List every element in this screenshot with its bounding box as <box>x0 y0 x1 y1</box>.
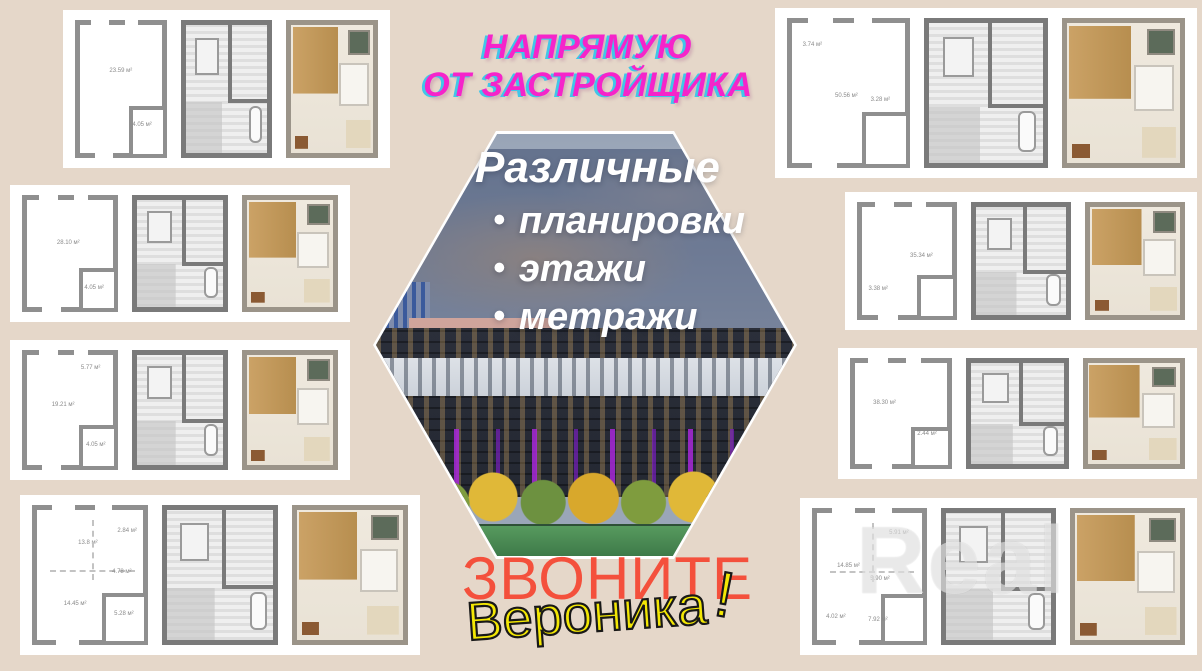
bathtub <box>1028 593 1045 630</box>
feature-item: •метражи <box>493 293 797 341</box>
feature-item: •этажи <box>493 245 797 293</box>
area-label: 7.92 м² <box>868 617 887 623</box>
area-label: 2.84 м² <box>117 528 136 534</box>
card-left-upper: 28.10 м²4.05 м² <box>10 185 350 322</box>
detailed-floorplan <box>941 508 1056 645</box>
card-top-right: 3.74 м²50.56 м²3.28 м² <box>775 8 1197 178</box>
window-gap <box>912 202 926 207</box>
area-label: 5.28 м² <box>114 611 133 617</box>
headline: НАПРЯМУЮ ОТ ЗАСТРОЙЩИКА <box>388 28 788 104</box>
area-label: 38.30 м² <box>873 400 896 406</box>
card-left-lower: 19.21 м²5.77 м²4.05 м² <box>10 340 350 480</box>
detailed-floorplan <box>971 202 1071 320</box>
window-gap <box>836 640 859 645</box>
window-gap <box>878 315 898 320</box>
bed-furniture <box>982 373 1008 403</box>
small-room <box>862 112 911 168</box>
window-gap <box>74 350 88 355</box>
bathtub <box>204 267 218 299</box>
window-gap <box>812 163 837 168</box>
feature-label: метражи <box>519 296 698 338</box>
window-gap <box>868 358 888 363</box>
outline-floorplan: 23.59 м²4.05 м² <box>75 20 167 158</box>
area-label: 14.45 м² <box>64 601 87 607</box>
area-label: 50.56 м² <box>835 93 858 99</box>
area-label: 13.8 м² <box>78 540 97 546</box>
bed-furniture <box>147 211 172 243</box>
area-label: 4.02 м² <box>826 614 845 620</box>
window-gap <box>875 202 895 207</box>
render-floorplan <box>1083 358 1185 469</box>
features-title: Различные <box>475 143 797 193</box>
small-room <box>917 275 957 320</box>
window-gap <box>854 18 872 23</box>
bullet-icon: • <box>493 245 505 292</box>
window-gap <box>52 505 75 510</box>
bed-furniture <box>147 366 172 399</box>
small-room <box>881 594 927 645</box>
bathtub <box>249 106 263 143</box>
headline-line1: НАПРЯМУЮ <box>388 28 788 66</box>
window-gap <box>875 508 892 513</box>
window-gap <box>832 508 855 513</box>
area-label: 4.05 м² <box>86 442 105 448</box>
detailed-floorplan <box>181 20 273 158</box>
area-label: 4.05 м² <box>84 285 103 291</box>
bed-furniture <box>195 38 219 75</box>
detailed-floorplan <box>162 505 278 645</box>
render-floorplan <box>1070 508 1185 645</box>
outline-floorplan: 13.8 м²2.84 м²4.78 м²14.45 м²5.28 м² <box>32 505 148 645</box>
autumn-trees <box>376 463 794 531</box>
detailed-floorplan <box>924 18 1047 168</box>
window-gap <box>39 195 58 200</box>
window-gap <box>95 505 112 510</box>
area-label: 28.10 м² <box>57 240 80 246</box>
window-gap <box>808 18 833 23</box>
window-gap <box>95 153 113 158</box>
bathtub <box>250 592 267 630</box>
outline-floorplan: 3.74 м²50.56 м²3.28 м² <box>787 18 910 168</box>
outline-floorplan: 35.34 м²3.38 м² <box>857 202 957 320</box>
card-right-lower: 38.30 м²2.44 м² <box>838 348 1197 479</box>
feature-item: •планировки <box>493 197 797 245</box>
area-label: 4.05 м² <box>132 122 151 128</box>
area-label: 3.74 м² <box>803 42 822 48</box>
window-gap <box>91 20 109 25</box>
area-label: 14.85 м² <box>837 563 860 569</box>
area-label: 4.78 м² <box>112 569 131 575</box>
window-gap <box>74 195 88 200</box>
bathtub <box>1046 274 1061 306</box>
render-floorplan <box>242 350 338 470</box>
features-list: Различные •планировки •этажи •метражи <box>373 137 797 341</box>
card-right-upper: 35.34 м²3.38 м² <box>845 192 1197 330</box>
render-floorplan <box>242 195 338 312</box>
small-room <box>102 593 148 645</box>
window-gap <box>42 465 61 470</box>
bed-furniture <box>987 218 1013 250</box>
outline-floorplan: 19.21 м²5.77 м²4.05 м² <box>22 350 118 470</box>
white-facade-band <box>376 358 794 396</box>
bed-furniture <box>943 37 974 77</box>
feature-label: этажи <box>519 248 646 290</box>
detailed-floorplan <box>966 358 1068 469</box>
bathtub <box>1043 426 1058 456</box>
headline-line2: ОТ ЗАСТРОЙЩИКА <box>388 66 788 104</box>
render-floorplan <box>286 20 378 158</box>
bullet-icon: • <box>493 293 505 340</box>
bed-furniture <box>959 526 988 563</box>
bullet-icon: • <box>493 197 505 244</box>
area-label: 5.91 м² <box>889 530 908 536</box>
window-gap <box>125 20 138 25</box>
agent-name-text: Вероника <box>465 576 710 653</box>
window-gap <box>872 464 892 469</box>
area-label: 23.59 м² <box>109 68 132 74</box>
area-label: 5.77 м² <box>81 365 100 371</box>
area-label: 3.28 м² <box>871 97 890 103</box>
bathtub <box>1018 111 1036 151</box>
bathtub <box>204 424 218 457</box>
real-estate-flyer: 23.59 м²4.05 м²28.10 м²4.05 м²19.21 м²5.… <box>0 0 1202 671</box>
card-bottom-left: 13.8 м²2.84 м²4.78 м²14.45 м²5.28 м² <box>20 495 420 655</box>
render-floorplan <box>1085 202 1185 320</box>
window-gap <box>42 307 61 312</box>
outline-floorplan: 38.30 м²2.44 м² <box>850 358 952 469</box>
window-gap <box>906 358 921 363</box>
small-room <box>129 106 166 158</box>
window-gap <box>56 640 79 645</box>
window-gap <box>39 350 58 355</box>
detailed-floorplan <box>132 350 228 470</box>
outline-floorplan: 28.10 м²4.05 м² <box>22 195 118 312</box>
detailed-floorplan <box>132 195 228 312</box>
card-top-left: 23.59 м²4.05 м² <box>63 10 390 168</box>
area-label: 3.38 м² <box>868 286 887 292</box>
hexagon-photo: Различные •планировки •этажи •метражи <box>373 131 797 559</box>
render-floorplan <box>1062 18 1185 168</box>
area-label: 2.44 м² <box>917 431 936 437</box>
outline-floorplan: 14.85 м²5.91 м²5.90 м²4.02 м²7.92 м² <box>812 508 927 645</box>
area-label: 5.90 м² <box>870 576 889 582</box>
bed-furniture <box>180 523 209 561</box>
area-label: 35.34 м² <box>910 253 933 259</box>
feature-label: планировки <box>519 200 745 242</box>
area-label: 19.21 м² <box>52 402 75 408</box>
card-bottom-right: 14.85 м²5.91 м²5.90 м²4.02 м²7.92 м² <box>800 498 1197 655</box>
